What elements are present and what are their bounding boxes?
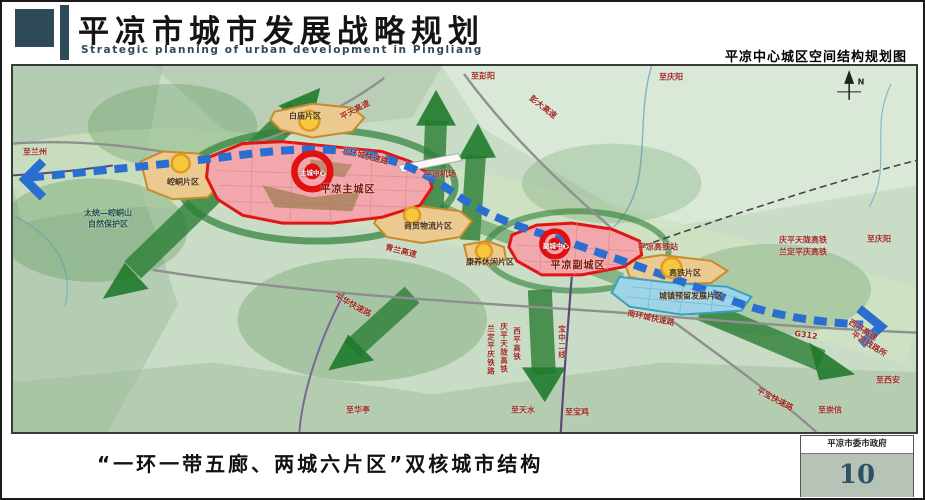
figure-caption: “一环一带五廊、两城六片区”双核城市结构	[97, 448, 543, 477]
footer: “一环一带五廊、两城六片区”双核城市结构 平凉市委市政府 10	[11, 434, 914, 498]
page-subtitle-en: Strategic planning of urban development …	[81, 44, 483, 56]
node-kongtong	[172, 155, 190, 173]
map-sheet-title: 平凉中心城区空间结构规划图	[725, 46, 907, 65]
core-main-dot	[304, 163, 320, 179]
org-name: 平凉市委市政府	[801, 436, 913, 454]
core-sub-dot	[548, 238, 561, 251]
logo-square	[15, 9, 54, 47]
map-canvas	[13, 66, 916, 432]
page: 平凉市城市发展战略规划 Strategic planning of urban …	[0, 0, 925, 500]
corridor-s	[540, 290, 544, 375]
page-number: 10	[801, 454, 913, 497]
node-trade	[404, 207, 420, 223]
planning-map: 至兰州 太统—崆峒山 自然保护区 崆峒片区 平凉主城区 主城中心 白庙片区 平天…	[11, 64, 918, 434]
title-divider-bar	[60, 5, 69, 60]
node-hsr	[662, 258, 682, 278]
node-leisure	[476, 243, 492, 259]
node-baimiao	[299, 111, 319, 131]
org-page-box: 平凉市委市政府 10	[800, 435, 914, 497]
